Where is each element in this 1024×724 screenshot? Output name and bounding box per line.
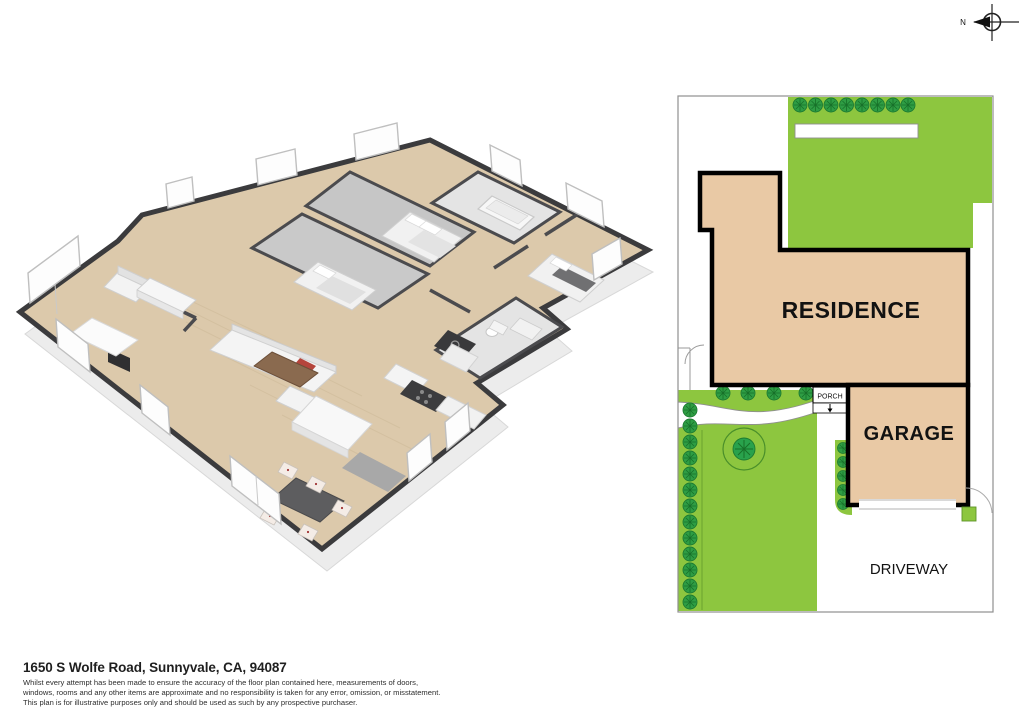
driveway-label: DRIVEWAY [870, 561, 948, 578]
property-address: 1650 S Wolfe Road, Sunnyvale, CA, 94087 [23, 660, 543, 675]
rear-path [795, 124, 918, 138]
floorplan-sheet: RESIDENCE PORCH GARAGE DRIVEWAY [0, 0, 1024, 724]
rear-lawn [788, 97, 992, 248]
residence-label: RESIDENCE [782, 297, 921, 323]
disclaimer-line: windows, rooms and any other items are a… [23, 688, 543, 698]
compass-north-label: N [960, 18, 966, 27]
garage-door [859, 499, 956, 511]
garage-footprint [848, 385, 968, 505]
site-plan: RESIDENCE PORCH GARAGE DRIVEWAY [678, 96, 993, 612]
footer: 1650 S Wolfe Road, Sunnyvale, CA, 94087 … [23, 660, 543, 707]
disclaimer-line: This plan is for illustrative purposes o… [23, 698, 543, 708]
compass-icon: N [960, 4, 1019, 41]
disclaimer: Whilst every attempt has been made to en… [23, 678, 543, 707]
garage-label: GARAGE [864, 423, 955, 445]
porch-label: PORCH [817, 394, 842, 401]
disclaimer-line: Whilst every attempt has been made to en… [23, 678, 543, 688]
floorplan-3d [20, 123, 653, 571]
lawn-tree [723, 428, 765, 470]
utility-square [962, 507, 976, 521]
porch: PORCH [813, 387, 847, 413]
